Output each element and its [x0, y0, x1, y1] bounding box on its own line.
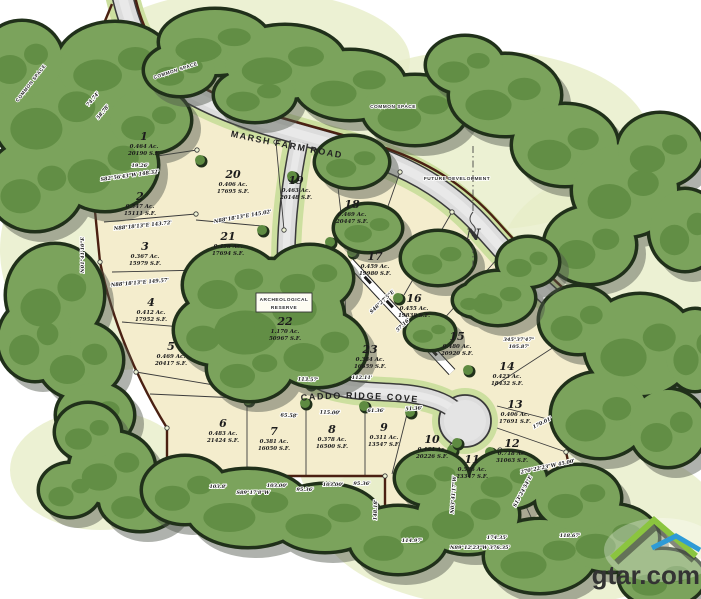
survey-pin [450, 210, 454, 214]
lot-number: 2 [135, 190, 144, 203]
lot-sqft: 50967 S.F. [269, 336, 301, 342]
lot-number: 6 [219, 417, 227, 430]
lot-number: 18 [344, 198, 360, 211]
dimension-label: 118.67' [560, 533, 581, 539]
lot-acres: 0.480 Ac. [443, 344, 472, 350]
lot-sqft: 15979 S.F. [129, 261, 161, 267]
plat-map-page: ARCHEOLOGICAL RESERVE MARSH FARM ROAD CA… [0, 0, 701, 599]
tree-texture-blob [326, 159, 356, 178]
tree-texture-blob [628, 170, 659, 196]
tree-texture-blob [252, 354, 277, 372]
tree-texture-blob [152, 106, 176, 124]
lot-sqft: 19980 S.F. [359, 271, 391, 277]
tree-texture-blob [438, 61, 470, 82]
lot-sqft: 20920 S.F. [440, 351, 473, 357]
lot-acres: 0.469 Ac. [157, 354, 186, 360]
lot-sqft: 16500 S.F. [316, 444, 348, 450]
tree-texture-blob [630, 145, 665, 172]
tree-texture-blob [121, 116, 155, 140]
lot-acres: 0.381 Ac. [260, 439, 289, 445]
tree-texture-blob [500, 551, 546, 578]
tree-texture-blob [82, 344, 107, 365]
lot-sqft: 20417 S.F. [154, 361, 187, 367]
lot-number: 13 [507, 398, 523, 411]
lot-number: 17 [367, 250, 383, 263]
tree-texture-blob [530, 252, 548, 265]
lot-number: 12 [504, 437, 520, 450]
tree-texture-blob [548, 494, 583, 518]
dimension-label: S89°17'8"W [236, 490, 271, 496]
survey-pin [194, 212, 198, 216]
lot-number: 5 [167, 340, 175, 353]
tree-texture-blob [73, 60, 122, 92]
dimension-label: 95.36' [296, 487, 314, 493]
bush [463, 365, 473, 375]
dimension-label: 65.58' [280, 413, 298, 420]
lot-number: 8 [328, 423, 336, 436]
north-letter: N [465, 225, 482, 244]
lot-acres: 0.412 Ac. [137, 310, 166, 316]
tree-texture-blob [155, 486, 190, 511]
tree-texture-blob [234, 269, 263, 290]
tree-texture-blob [670, 412, 693, 433]
lot-acres: 0.347 Ac. [126, 204, 155, 210]
survey-pin [383, 474, 387, 478]
common-space-label: COMMON SPACE [370, 104, 416, 110]
lot-acres: 0.718 Ac. [498, 451, 527, 457]
tree-texture-blob [588, 184, 632, 219]
survey-pin [165, 426, 169, 430]
tree-texture-blob [328, 504, 361, 522]
lot-sqft: 16659 S.F. [354, 364, 386, 370]
lot-number: 21 [219, 230, 235, 243]
tree-texture-blob [312, 264, 337, 282]
tree-texture-blob [418, 95, 449, 114]
dimension-label: 345°37'47" [504, 337, 535, 343]
lot-sqft: 16050 S.F. [258, 446, 290, 452]
lot-acres: 0.367 Ac. [131, 254, 160, 260]
reserve-line2: RESERVE [271, 305, 298, 311]
tree-texture-blob [175, 38, 221, 62]
lot-number: 23 [361, 343, 378, 356]
lot-number: 4 [147, 296, 155, 309]
lot-number: 14 [499, 360, 514, 373]
dimension-label: 174.35' [487, 535, 508, 541]
bush [452, 438, 462, 448]
dimension-label: 114.97' [402, 538, 423, 544]
tree-texture-blob [283, 343, 323, 372]
bush [195, 155, 205, 165]
subdivision-plat-drawing: ARCHEOLOGICAL RESERVE MARSH FARM ROAD CA… [0, 0, 701, 599]
tree-texture-blob [568, 128, 599, 150]
lot-number: 11 [464, 453, 479, 466]
lot-sqft: 31063 S.F. [496, 458, 528, 464]
lot-acres: 0.384 Ac. [356, 357, 385, 363]
tree-texture-blob [673, 345, 698, 375]
reserve-line1: ARCHEOLOGICAL [260, 297, 309, 303]
lot-acres: 0.459 Ac. [361, 264, 390, 270]
tree-texture-blob [354, 151, 376, 165]
tree-texture-blob [114, 453, 139, 473]
tree-texture-blob [600, 339, 646, 377]
tree-texture-blob [431, 325, 445, 335]
lot-sqft: 21424 S.F. [206, 438, 239, 444]
dimension-label: 51.36' [405, 406, 423, 413]
dimension-label: 105.87' [509, 344, 530, 350]
lot-number: 22 [276, 315, 293, 328]
dimension-label: 115.00' [320, 410, 341, 417]
tree-texture-blob [344, 225, 372, 242]
tree-texture-blob [528, 140, 572, 170]
lot-sqft: 19838 S.F. [398, 313, 430, 319]
tree-texture-blob [565, 410, 605, 442]
tree-texture-blob [57, 274, 86, 302]
lot-sqft: 13547 S.F. [368, 442, 400, 448]
tree-texture-blob [20, 289, 60, 327]
tree-texture-blob [580, 306, 603, 324]
lot-acres: 0.455 Ac. [400, 306, 429, 312]
lot-sqft: 23347 S.F. [455, 474, 488, 480]
lot-sqft: 17695 S.F. [217, 189, 249, 195]
dimension-label: 103.00' [267, 483, 288, 489]
tree-texture-blob [363, 536, 403, 561]
lot-acres: 0.406 Ac. [219, 182, 248, 188]
lot-number: 19 [288, 174, 304, 187]
lot-sqft: 20226 S.F. [415, 454, 448, 460]
lot-number: 20 [224, 168, 241, 181]
dimension-label: 103.8' [209, 484, 227, 490]
lot-sqft: 17691 S.F. [499, 419, 531, 425]
lot-number: 1 [140, 130, 148, 143]
tree-texture-blob [353, 70, 386, 89]
tree-texture-blob [467, 53, 490, 69]
tree-texture-blob [285, 514, 331, 539]
dimension-label: 61.36' [367, 408, 385, 414]
tree-texture-blob [186, 326, 220, 352]
tree-texture-blob [37, 166, 66, 191]
lot-number: 10 [424, 433, 440, 446]
survey-pin [134, 370, 138, 374]
tree-texture-blob [217, 315, 241, 334]
lot-acres: 0.536 Ac. [458, 467, 487, 473]
tree-texture-blob [310, 81, 356, 107]
tree-texture-blob [218, 28, 251, 46]
lot-acres: 0.406 Ac. [501, 412, 530, 418]
tree-texture-blob [257, 84, 281, 99]
archeological-reserve-label: ARCHEOLOGICAL RESERVE [256, 293, 312, 312]
lot-acres: 0.464 Ac. [130, 144, 159, 150]
lot-sqft: 20190 S.F. [127, 151, 160, 157]
lot-acres: 0.469 Ac. [338, 212, 367, 218]
tree-texture-blob [90, 420, 109, 436]
lot-sqft: 20447 S.F. [335, 219, 368, 225]
tree-texture-blob [48, 487, 73, 507]
survey-pin [98, 260, 102, 264]
tree-texture-blob [641, 423, 673, 452]
tree-texture-blob [506, 259, 531, 277]
tree-texture-blob [592, 229, 619, 250]
tree-texture-blob [9, 335, 39, 365]
watermark-text: gtar.com [592, 560, 700, 590]
tree-texture-blob [197, 280, 237, 309]
dimension-label: 103.00' [323, 482, 344, 488]
tree-texture-blob [543, 541, 576, 561]
tree-texture-blob [412, 255, 442, 275]
tree-texture-blob [471, 499, 501, 520]
tree-texture-blob [508, 78, 541, 100]
lot-number: 15 [449, 330, 464, 343]
tree-texture-blob [465, 90, 511, 120]
tree-texture-blob [242, 57, 292, 84]
dimension-label: 95.36' [353, 481, 371, 487]
survey-pin [282, 228, 286, 232]
dimension-label: 113.57' [298, 377, 319, 384]
lot-number: 3 [141, 240, 149, 253]
lot-acres: 0.463 Ac. [282, 188, 311, 194]
lot-sqft: 18432 S.F. [491, 381, 523, 387]
bush [257, 225, 267, 235]
tree-texture-blob [72, 479, 90, 494]
tree-texture-blob [203, 503, 255, 532]
dimension-label: N89°12'23"W 376.35' [449, 545, 511, 551]
tree-texture-blob [10, 108, 62, 150]
lot-number: 16 [406, 292, 422, 305]
lot-acres: 0.483 Ac. [209, 431, 238, 437]
tree-texture-blob [477, 293, 490, 302]
tree-texture-blob [24, 44, 48, 65]
future-development-label: FUTURE DEVELOPMENT [424, 176, 490, 182]
tree-texture-blob [413, 330, 433, 343]
tree-texture-blob [660, 225, 689, 255]
lot-sqft: 15111 S.F. [124, 211, 156, 217]
tree-texture-blob [320, 332, 349, 353]
tree-texture-blob [662, 135, 687, 155]
tree-texture-blob [643, 324, 676, 352]
lot-number: 9 [380, 421, 388, 434]
lot-acres: 1.170 Ac. [271, 329, 300, 335]
tree-texture-blob [37, 323, 59, 345]
lot-acres: 0.423 Ac. [493, 374, 522, 380]
tree-texture-blob [406, 474, 436, 495]
lot-number: 7 [270, 425, 278, 438]
lot-acres: 0.464 Ac. [418, 447, 447, 453]
tree-texture-blob [551, 316, 583, 341]
lot-acres: 0.378 Ac. [318, 437, 347, 443]
tree-texture-blob [111, 496, 145, 519]
lot-sqft: 17952 S.F. [135, 317, 167, 323]
tree-texture-blob [226, 92, 260, 112]
tree-texture-blob [602, 397, 631, 421]
dimension-label: N01°41'10"E [80, 237, 86, 274]
lot-sqft: 20148 S.F. [279, 195, 312, 201]
tree-texture-blob [580, 484, 605, 502]
tree-texture-blob [50, 355, 85, 384]
dimension-label: 112.11' [352, 375, 373, 381]
survey-pin [195, 148, 199, 152]
tree-texture-blob [65, 428, 92, 449]
tree-texture-blob [460, 298, 478, 310]
lot-sqft: 17694 S.F. [212, 251, 244, 257]
lot-acres: 0.458 Ac. [214, 244, 243, 250]
tree-texture-blob [370, 218, 390, 231]
tree-texture-blob [440, 247, 462, 262]
dimension-label: 148.18' [373, 499, 380, 520]
dimension-label: 19.26' [131, 163, 149, 169]
tree-texture-blob [288, 47, 324, 67]
tree-texture-blob [220, 364, 255, 388]
lot-acres: 0.311 Ac. [370, 435, 399, 441]
tree-texture-blob [500, 287, 522, 302]
tree-texture-blob [0, 179, 40, 213]
